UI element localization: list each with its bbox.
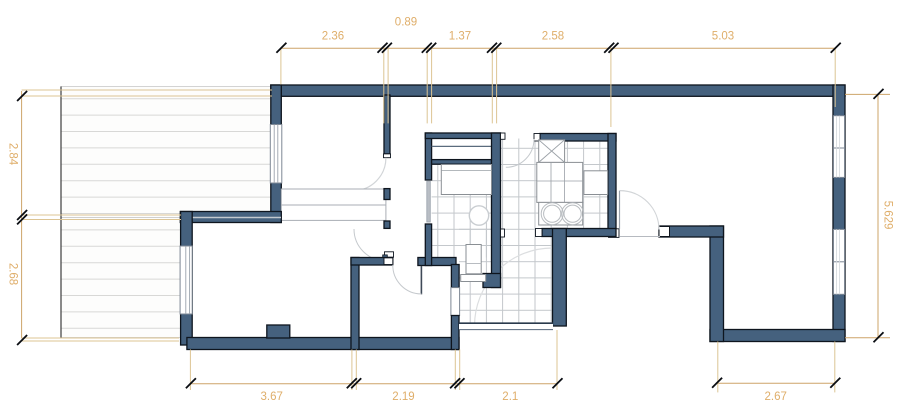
svg-text:5.629: 5.629 xyxy=(882,201,894,230)
svg-text:2.68: 2.68 xyxy=(7,263,19,285)
svg-text:2.1: 2.1 xyxy=(502,391,518,403)
svg-text:2.19: 2.19 xyxy=(392,391,414,403)
svg-text:0.89: 0.89 xyxy=(395,17,417,29)
svg-text:3.67: 3.67 xyxy=(261,391,283,403)
svg-text:2.58: 2.58 xyxy=(542,30,564,42)
svg-text:2.84: 2.84 xyxy=(7,143,19,166)
svg-text:5.03: 5.03 xyxy=(712,30,734,42)
svg-text:2.36: 2.36 xyxy=(322,30,344,42)
svg-text:2.67: 2.67 xyxy=(765,391,787,403)
svg-text:1.37: 1.37 xyxy=(449,30,471,42)
